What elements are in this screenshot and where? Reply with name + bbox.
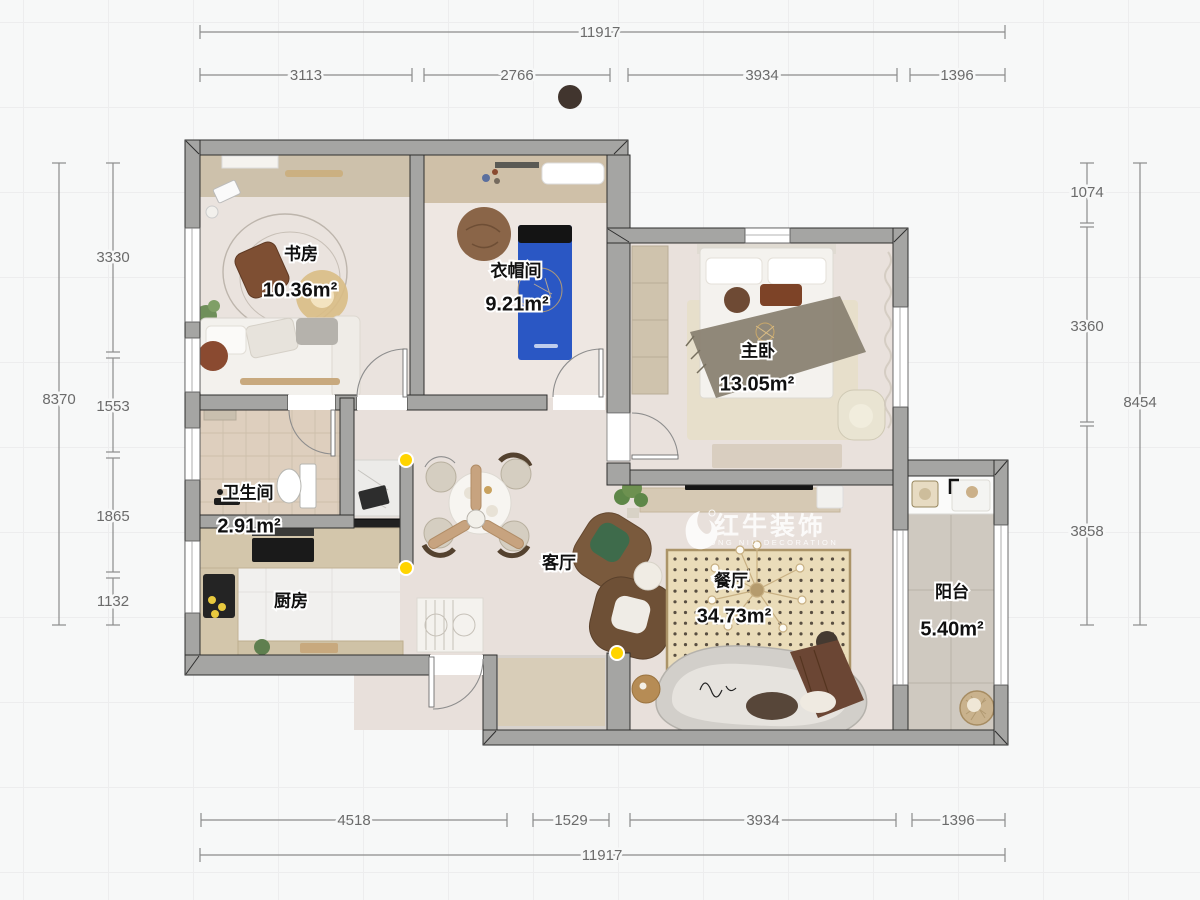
svg-text:1553: 1553: [96, 398, 129, 415]
svg-text:1396: 1396: [940, 67, 973, 84]
svg-text:厨房: 厨房: [274, 590, 308, 610]
dining-plant: [627, 508, 639, 518]
balcony-right-window: [994, 525, 1008, 685]
kitchen-sink: [203, 574, 235, 618]
svg-text:9.21m²: 9.21m²: [485, 293, 549, 315]
svg-text:8454: 8454: [1123, 394, 1156, 411]
svg-text:餐厅: 餐厅: [714, 570, 748, 590]
side-table: [632, 675, 660, 703]
svg-text:5.40m²: 5.40m²: [920, 618, 984, 640]
svg-text:主卧: 主卧: [741, 340, 775, 360]
marker-yellow-3[interactable]: [610, 646, 624, 660]
study-wall-decor: [285, 170, 343, 177]
svg-text:3113: 3113: [290, 67, 322, 84]
svg-text:3330: 3330: [96, 249, 129, 266]
marker-yellow-2[interactable]: [399, 561, 413, 575]
marker-yellow-1[interactable]: [399, 453, 413, 467]
study-ceiling-light: [222, 156, 278, 168]
room-label-kitchen[interactable]: 厨房: [274, 590, 308, 610]
master-top-window: [745, 228, 790, 243]
svg-text:卫生间: 卫生间: [223, 482, 274, 502]
svg-text:3858: 3858: [1070, 523, 1103, 540]
dining-chair: [426, 462, 456, 492]
svg-text:3360: 3360: [1070, 318, 1103, 335]
svg-text:34.73m²: 34.73m²: [697, 605, 772, 627]
dim-bottom-segments: 4518 1529 3934 1396: [201, 812, 1005, 829]
svg-text:1396: 1396: [941, 812, 974, 829]
svg-text:客厅: 客厅: [541, 552, 576, 572]
balcony-sliding-door: [893, 530, 908, 685]
svg-text:2.91m²: 2.91m²: [217, 515, 281, 537]
dim-left-segments: 3330 1553 1865 1132: [96, 163, 129, 625]
master-orange-pillow: [760, 284, 802, 306]
kitchen-cooktop: [252, 538, 314, 562]
cloakroom-ac-unit: [542, 163, 604, 184]
living-striped-rug: [417, 598, 483, 652]
kitchen-window: [185, 541, 200, 613]
toilet-bowl: [277, 469, 301, 503]
svg-text:衣帽间: 衣帽间: [491, 260, 542, 280]
master-dresser: [712, 444, 842, 468]
dim-top-total: 11917: [200, 24, 1005, 41]
study-window-1: [185, 228, 200, 322]
cloakroom-pouf: [457, 207, 511, 261]
cloakroom-vent: [495, 162, 539, 168]
dim-bottom-total: 11917: [200, 847, 1005, 864]
marker-dark-dot[interactable]: [558, 85, 582, 109]
dim-right-segments: 1074 3360 3858: [1070, 163, 1103, 625]
study-window-2: [185, 338, 200, 392]
dim-left-total: 8370: [42, 163, 75, 625]
svg-text:1865: 1865: [96, 508, 129, 525]
bathroom-window: [185, 428, 200, 480]
kitchen-plant: [254, 639, 270, 655]
svg-text:1529: 1529: [554, 812, 587, 829]
floorplan-stage: 红牛装饰 HONG NIU DECORATION 书房 10.36m² 衣帽间 …: [0, 0, 1200, 900]
svg-text:2766: 2766: [500, 67, 533, 84]
study-brown-cushion: [198, 341, 228, 371]
watermark-subtitle: HONG NIU DECORATION: [702, 538, 839, 547]
svg-text:4518: 4518: [337, 812, 370, 829]
master-right-window: [893, 307, 908, 407]
svg-text:11917: 11917: [582, 847, 623, 864]
curved-sofa: [656, 640, 867, 742]
toilet-tank: [300, 464, 316, 508]
svg-text:3934: 3934: [745, 67, 778, 84]
dining-chair: [501, 459, 531, 489]
entry-mat: [498, 658, 605, 726]
svg-text:书房: 书房: [284, 243, 318, 263]
dim-right-total: 8454: [1123, 163, 1156, 625]
svg-text:8370: 8370: [42, 391, 75, 408]
svg-text:1074: 1074: [1070, 184, 1103, 201]
svg-text:阳台: 阳台: [935, 581, 969, 601]
svg-text:10.36m²: 10.36m²: [263, 279, 338, 301]
room-label-living-room[interactable]: 客厅: [541, 552, 576, 572]
svg-text:1132: 1132: [97, 593, 129, 610]
svg-text:11917: 11917: [580, 24, 621, 41]
watermark-brand: 红牛装饰: [714, 512, 826, 541]
tv-bench: [640, 488, 840, 512]
svg-text:3934: 3934: [746, 812, 779, 829]
svg-text:13.05m²: 13.05m²: [720, 373, 795, 395]
dim-top-segments: 3113 2766 3934 1396: [200, 67, 1005, 84]
floor-plan-canvas: 红牛装饰 HONG NIU DECORATION 书房 10.36m² 衣帽间 …: [0, 0, 1200, 900]
